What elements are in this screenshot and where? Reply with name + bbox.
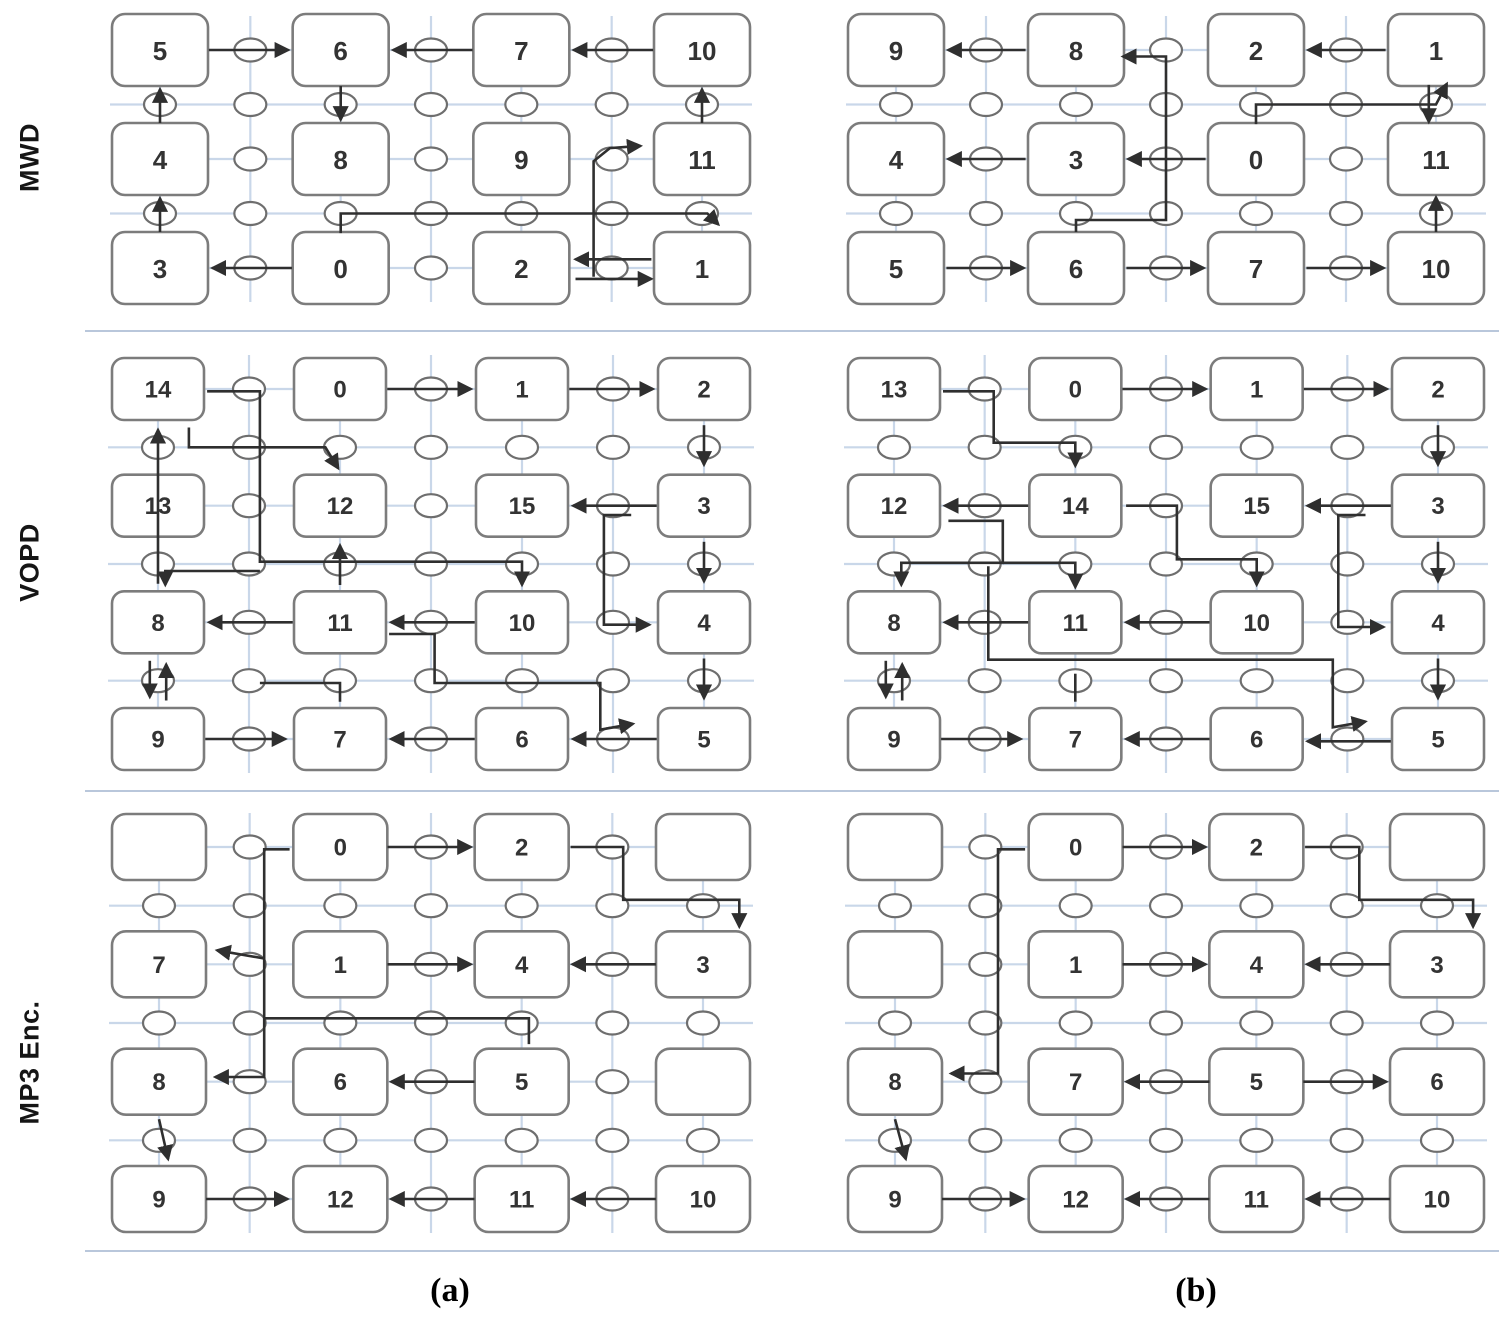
core-label: 12 bbox=[1062, 1187, 1089, 1214]
router bbox=[596, 93, 628, 116]
core-label: 7 bbox=[152, 952, 165, 979]
core-label: 10 bbox=[690, 1187, 717, 1214]
core-label: 8 bbox=[152, 1069, 165, 1096]
core-label: 3 bbox=[696, 952, 709, 979]
router bbox=[1241, 436, 1273, 459]
core-label: 0 bbox=[334, 835, 347, 862]
router bbox=[234, 1012, 266, 1035]
router bbox=[506, 669, 538, 692]
router bbox=[415, 494, 447, 517]
mesh-panel-svg: 1401213121538111049765 bbox=[100, 350, 762, 778]
router bbox=[415, 553, 447, 576]
router bbox=[879, 894, 911, 917]
core-label: 2 bbox=[697, 377, 710, 404]
router bbox=[415, 148, 447, 171]
core-label: 2 bbox=[515, 835, 528, 862]
core-label: 9 bbox=[151, 727, 164, 754]
router bbox=[1331, 669, 1363, 692]
core-box bbox=[656, 1049, 750, 1115]
router bbox=[143, 1129, 175, 1152]
core-label: 9 bbox=[887, 727, 900, 754]
router bbox=[142, 669, 174, 692]
router bbox=[687, 1129, 719, 1152]
panel-mp3-b: 0214387569121110 bbox=[836, 806, 1496, 1240]
router bbox=[234, 148, 266, 171]
router bbox=[1150, 436, 1182, 459]
router bbox=[506, 436, 538, 459]
router bbox=[1331, 436, 1363, 459]
core-label: 5 bbox=[889, 254, 903, 284]
core-label: 3 bbox=[1069, 145, 1083, 175]
router bbox=[969, 436, 1001, 459]
router bbox=[506, 894, 538, 917]
core-label: 0 bbox=[1069, 377, 1082, 404]
core-label: 4 bbox=[1431, 610, 1445, 637]
core-label: 5 bbox=[1250, 1069, 1263, 1096]
core-label: 4 bbox=[889, 145, 904, 175]
router bbox=[1240, 1012, 1272, 1035]
router bbox=[597, 436, 629, 459]
mesh-panel-svg: 56710489113021 bbox=[100, 6, 762, 312]
core-label: 6 bbox=[333, 36, 347, 66]
router bbox=[234, 1070, 266, 1093]
router bbox=[596, 148, 628, 171]
router bbox=[1060, 894, 1092, 917]
caption-a: (a) bbox=[390, 1272, 510, 1310]
mesh-panel-svg: 98214301156710 bbox=[836, 6, 1496, 312]
core-label: 6 bbox=[1250, 727, 1263, 754]
panel-vopd-a: 1401213121538111049765 bbox=[100, 350, 762, 778]
router bbox=[324, 1129, 356, 1152]
router bbox=[596, 1129, 628, 1152]
panel-mwd-a: 56710489113021 bbox=[100, 6, 762, 312]
router bbox=[969, 669, 1001, 692]
core-label: 3 bbox=[153, 254, 167, 284]
core-label: 2 bbox=[1249, 36, 1263, 66]
router bbox=[969, 1129, 1001, 1152]
router bbox=[234, 1129, 266, 1152]
router bbox=[970, 202, 1002, 225]
router bbox=[597, 669, 629, 692]
router bbox=[969, 836, 1001, 859]
router bbox=[879, 1129, 911, 1152]
core-label: 5 bbox=[515, 1069, 528, 1096]
core-label: 11 bbox=[1244, 1187, 1269, 1214]
router bbox=[597, 611, 629, 634]
router bbox=[324, 1012, 356, 1035]
core-label: 11 bbox=[509, 1187, 534, 1214]
core-label: 15 bbox=[509, 493, 536, 520]
router bbox=[1421, 894, 1453, 917]
panel-mwd-b: 98214301156710 bbox=[836, 6, 1496, 312]
noc-mapping-figure: MWD VOPD MP3 Enc. 56710489113021 9821430… bbox=[0, 0, 1500, 1325]
core-label: 11 bbox=[1063, 610, 1088, 637]
core-label: 0 bbox=[333, 254, 347, 284]
core-label: 2 bbox=[514, 254, 528, 284]
core-box bbox=[848, 814, 942, 880]
mesh-panel-svg: 0214387569121110 bbox=[836, 806, 1496, 1240]
row-label-mp3: MP3 Enc. bbox=[15, 953, 46, 1173]
router bbox=[1060, 93, 1092, 116]
traffic-arrow bbox=[1256, 84, 1447, 124]
core-label: 4 bbox=[153, 145, 168, 175]
core-label: 4 bbox=[515, 952, 529, 979]
core-label: 3 bbox=[1430, 952, 1443, 979]
router bbox=[969, 378, 1001, 401]
router bbox=[1150, 1129, 1182, 1152]
core-label: 1 bbox=[334, 952, 347, 979]
core-box bbox=[1390, 814, 1484, 880]
core-label: 1 bbox=[1069, 952, 1082, 979]
core-label: 9 bbox=[514, 145, 528, 175]
core-label: 4 bbox=[697, 610, 711, 637]
router bbox=[878, 669, 910, 692]
router bbox=[1060, 1129, 1092, 1152]
router bbox=[415, 93, 447, 116]
router bbox=[1240, 894, 1272, 917]
core-label: 8 bbox=[888, 1069, 901, 1096]
router bbox=[415, 257, 447, 280]
core-label: 2 bbox=[1250, 835, 1263, 862]
router bbox=[415, 436, 447, 459]
core-label: 4 bbox=[1250, 952, 1264, 979]
mesh-panel-svg: 0271438659121110 bbox=[100, 806, 762, 1240]
core-label: 14 bbox=[1062, 493, 1089, 520]
router bbox=[415, 1012, 447, 1035]
router bbox=[234, 894, 266, 917]
core-label: 15 bbox=[1243, 493, 1270, 520]
router bbox=[596, 1070, 628, 1093]
section-divider-1 bbox=[85, 330, 1499, 332]
router bbox=[687, 894, 719, 917]
core-label: 6 bbox=[515, 727, 528, 754]
core-label: 7 bbox=[333, 727, 346, 754]
router bbox=[597, 553, 629, 576]
core-label: 5 bbox=[153, 36, 167, 66]
router bbox=[878, 436, 910, 459]
mesh-panel-svg: 1301212141538111049765 bbox=[836, 350, 1496, 778]
core-label: 6 bbox=[334, 1069, 347, 1096]
core-label: 12 bbox=[881, 493, 908, 520]
router bbox=[234, 93, 266, 116]
core-label: 9 bbox=[152, 1187, 165, 1214]
core-label: 3 bbox=[697, 493, 710, 520]
row-label-mwd: MWD bbox=[15, 48, 46, 268]
core-label: 14 bbox=[145, 377, 172, 404]
core-label: 7 bbox=[1069, 727, 1082, 754]
router bbox=[506, 1012, 538, 1035]
router bbox=[1421, 1012, 1453, 1035]
core-label: 9 bbox=[888, 1187, 901, 1214]
router bbox=[880, 93, 912, 116]
router bbox=[1240, 1129, 1272, 1152]
router bbox=[415, 894, 447, 917]
core-label: 7 bbox=[1069, 1069, 1082, 1096]
router bbox=[1421, 1129, 1453, 1152]
router bbox=[1241, 669, 1273, 692]
core-label: 0 bbox=[333, 377, 346, 404]
router bbox=[234, 202, 266, 225]
router bbox=[415, 669, 447, 692]
row-label-vopd: VOPD bbox=[15, 453, 46, 673]
core-label: 8 bbox=[887, 610, 900, 637]
core-label: 7 bbox=[514, 36, 528, 66]
core-label: 5 bbox=[697, 727, 710, 754]
core-label: 13 bbox=[881, 377, 908, 404]
router bbox=[1331, 553, 1363, 576]
router bbox=[1330, 202, 1362, 225]
core-label: 10 bbox=[688, 36, 717, 66]
router bbox=[687, 1012, 719, 1035]
core-label: 1 bbox=[1429, 36, 1443, 66]
router bbox=[415, 1129, 447, 1152]
core-label: 12 bbox=[327, 493, 354, 520]
core-label: 12 bbox=[327, 1187, 354, 1214]
router bbox=[324, 436, 356, 459]
router bbox=[324, 894, 356, 917]
router bbox=[969, 1012, 1001, 1035]
caption-b: (b) bbox=[1136, 1272, 1256, 1310]
core-label: 10 bbox=[509, 610, 536, 637]
router bbox=[505, 93, 537, 116]
core-box bbox=[848, 931, 942, 997]
router bbox=[1150, 1012, 1182, 1035]
panel-vopd-b: 1301212141538111049765 bbox=[836, 350, 1496, 778]
traffic-arrow bbox=[189, 428, 338, 469]
router bbox=[1331, 894, 1363, 917]
core-label: 7 bbox=[1249, 254, 1263, 284]
core-label: 6 bbox=[1430, 1069, 1443, 1096]
router bbox=[969, 894, 1001, 917]
core-label: 11 bbox=[1422, 145, 1450, 175]
core-box bbox=[656, 814, 750, 880]
router bbox=[879, 1012, 911, 1035]
core-label: 8 bbox=[333, 145, 347, 175]
core-label: 10 bbox=[1422, 254, 1451, 284]
router bbox=[1331, 611, 1363, 634]
core-label: 5 bbox=[1431, 727, 1444, 754]
router bbox=[143, 1012, 175, 1035]
router bbox=[970, 93, 1002, 116]
core-label: 2 bbox=[1431, 377, 1444, 404]
router bbox=[880, 202, 912, 225]
core-label: 1 bbox=[515, 377, 528, 404]
router bbox=[1240, 202, 1272, 225]
router bbox=[1331, 1129, 1363, 1152]
router bbox=[1331, 728, 1363, 751]
router bbox=[1330, 148, 1362, 171]
router bbox=[1150, 669, 1182, 692]
router bbox=[233, 669, 265, 692]
core-label: 10 bbox=[1243, 610, 1270, 637]
core-label: 3 bbox=[1431, 493, 1444, 520]
router bbox=[1060, 1012, 1092, 1035]
router bbox=[969, 953, 1001, 976]
core-label: 1 bbox=[695, 254, 709, 284]
core-label: 9 bbox=[889, 36, 903, 66]
core-label: 11 bbox=[688, 145, 716, 175]
router bbox=[506, 1129, 538, 1152]
core-box bbox=[112, 814, 206, 880]
core-label: 1 bbox=[1250, 377, 1263, 404]
core-label: 6 bbox=[1069, 254, 1083, 284]
router bbox=[143, 894, 175, 917]
core-label: 0 bbox=[1249, 145, 1263, 175]
section-divider-2 bbox=[85, 790, 1499, 792]
section-divider-3 bbox=[85, 1250, 1499, 1252]
core-label: 8 bbox=[1069, 36, 1083, 66]
panel-mp3-a: 0271438659121110 bbox=[100, 806, 762, 1240]
core-label: 11 bbox=[327, 610, 352, 637]
router bbox=[596, 1012, 628, 1035]
router bbox=[234, 836, 266, 859]
core-label: 0 bbox=[1069, 835, 1082, 862]
router bbox=[1331, 1012, 1363, 1035]
core-label: 8 bbox=[151, 610, 164, 637]
core-label: 10 bbox=[1424, 1187, 1451, 1214]
router bbox=[1150, 894, 1182, 917]
